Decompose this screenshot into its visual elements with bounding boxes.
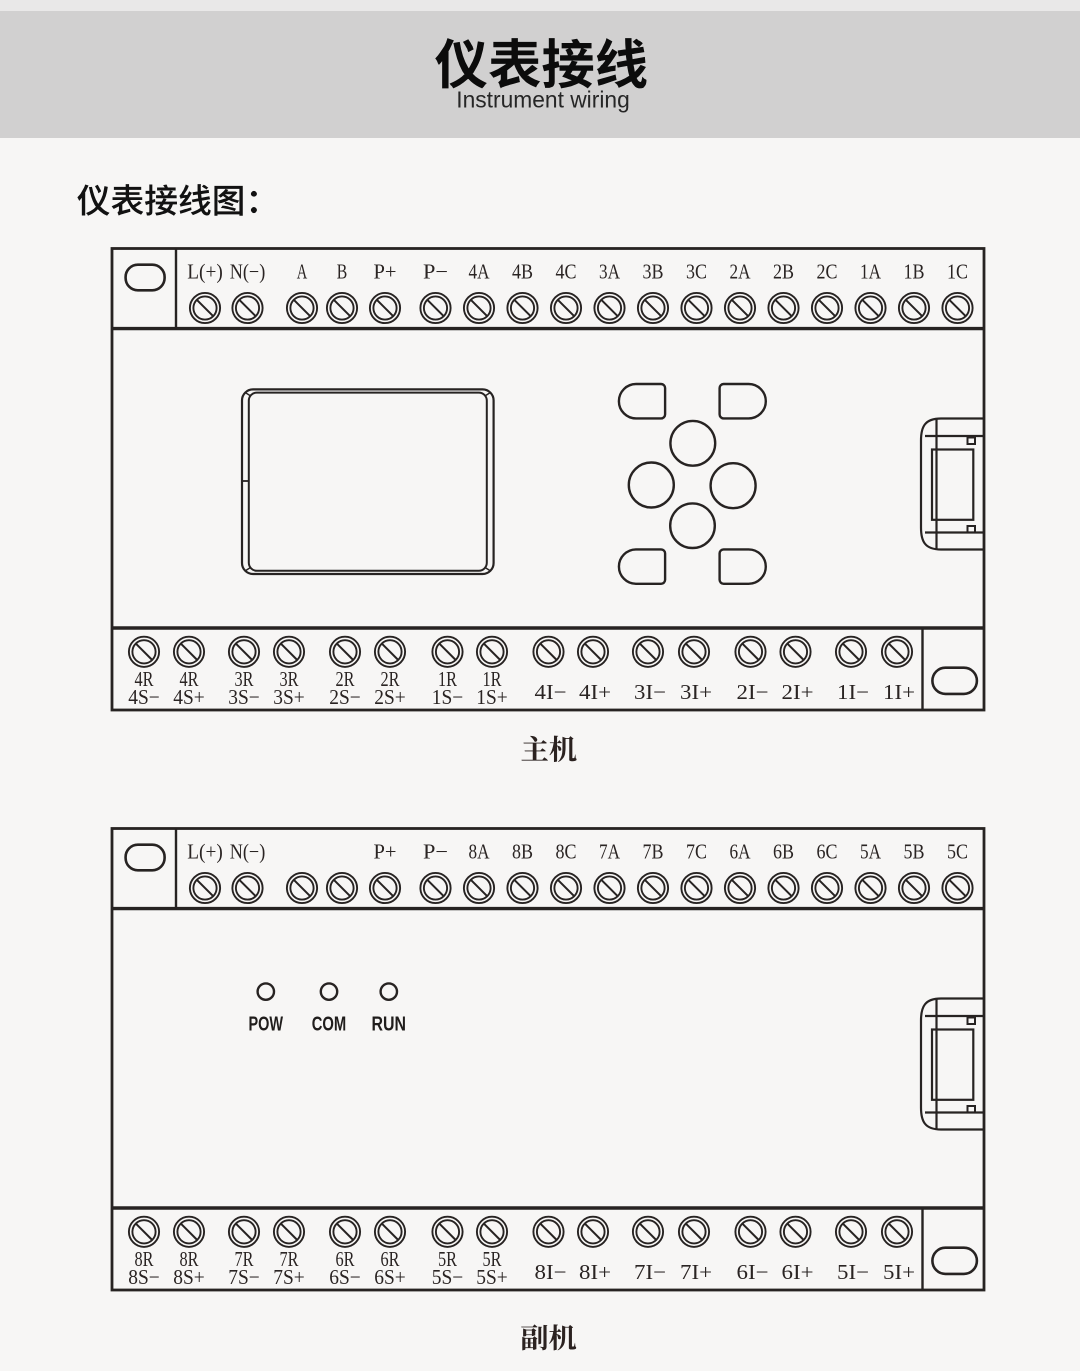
svg-text:2S−: 2S− (329, 685, 361, 709)
svg-text:6S−: 6S− (329, 1265, 361, 1289)
svg-text:L(+): L(+) (187, 840, 223, 864)
svg-text:6B: 6B (773, 840, 794, 864)
svg-text:N(−): N(−) (230, 260, 266, 284)
svg-text:2A: 2A (730, 260, 752, 284)
svg-text:3C: 3C (686, 260, 707, 284)
svg-text:4C: 4C (556, 260, 577, 284)
svg-text:6C: 6C (817, 840, 838, 864)
svg-text:3I+: 3I+ (680, 680, 712, 704)
svg-text:7B: 7B (643, 840, 664, 864)
svg-text:8S+: 8S+ (173, 1265, 205, 1289)
svg-text:6I+: 6I+ (782, 1260, 814, 1284)
svg-text:5I+: 5I+ (883, 1260, 915, 1284)
svg-text:8I−: 8I− (535, 1260, 567, 1284)
svg-text:3S−: 3S− (228, 685, 260, 709)
svg-text:B: B (337, 260, 348, 284)
svg-text:POW: POW (249, 1014, 284, 1036)
svg-text:N(−): N(−) (230, 840, 266, 864)
svg-text:1S+: 1S+ (476, 685, 508, 709)
svg-text:3A: 3A (599, 260, 621, 284)
svg-text:4I+: 4I+ (579, 680, 611, 704)
svg-text:3S+: 3S+ (273, 685, 305, 709)
svg-text:8C: 8C (556, 840, 577, 864)
svg-text:4A: 4A (469, 260, 491, 284)
svg-text:5C: 5C (947, 840, 968, 864)
svg-text:P+: P+ (374, 260, 397, 284)
svg-text:4B: 4B (512, 260, 533, 284)
svg-text:8S−: 8S− (128, 1265, 160, 1289)
svg-text:8B: 8B (512, 840, 533, 864)
svg-text:Instrument wiring: Instrument wiring (456, 87, 630, 113)
svg-text:P+: P+ (374, 840, 397, 864)
svg-text:7I−: 7I− (634, 1260, 666, 1284)
svg-text:1I−: 1I− (837, 680, 869, 704)
svg-text:1I+: 1I+ (883, 680, 915, 704)
svg-text:L(+): L(+) (187, 260, 223, 284)
svg-text:4S+: 4S+ (173, 685, 205, 709)
svg-text:3I−: 3I− (634, 680, 666, 704)
svg-text:2C: 2C (817, 260, 838, 284)
svg-text:5S+: 5S+ (476, 1265, 508, 1289)
svg-text:4I−: 4I− (535, 680, 567, 704)
svg-text:6A: 6A (730, 840, 752, 864)
svg-text:1B: 1B (904, 260, 925, 284)
svg-text:5A: 5A (860, 840, 882, 864)
svg-text:RUN: RUN (372, 1014, 407, 1036)
svg-text:P−: P− (423, 840, 448, 864)
svg-text:2I+: 2I+ (782, 680, 814, 704)
svg-text:8I+: 8I+ (579, 1260, 611, 1284)
svg-text:7C: 7C (686, 840, 707, 864)
svg-text:1A: 1A (860, 260, 882, 284)
svg-text:5B: 5B (904, 840, 925, 864)
svg-text:8A: 8A (469, 840, 491, 864)
svg-text:2B: 2B (773, 260, 794, 284)
svg-text:2S+: 2S+ (374, 685, 406, 709)
svg-text:6I−: 6I− (737, 1260, 769, 1284)
svg-text:4S−: 4S− (128, 685, 160, 709)
svg-text:P−: P− (423, 260, 448, 284)
svg-text:7S+: 7S+ (273, 1265, 305, 1289)
svg-text:2I−: 2I− (737, 680, 769, 704)
svg-text:3B: 3B (643, 260, 664, 284)
svg-text:7S−: 7S− (228, 1265, 260, 1289)
svg-text:6S+: 6S+ (374, 1265, 406, 1289)
svg-text:1S−: 1S− (432, 685, 464, 709)
svg-text:5S−: 5S− (432, 1265, 464, 1289)
svg-text:A: A (297, 260, 308, 284)
svg-text:7I+: 7I+ (680, 1260, 712, 1284)
svg-text:7A: 7A (599, 840, 621, 864)
svg-text:COM: COM (312, 1014, 347, 1036)
svg-text:5I−: 5I− (837, 1260, 869, 1284)
svg-text:1C: 1C (947, 260, 968, 284)
